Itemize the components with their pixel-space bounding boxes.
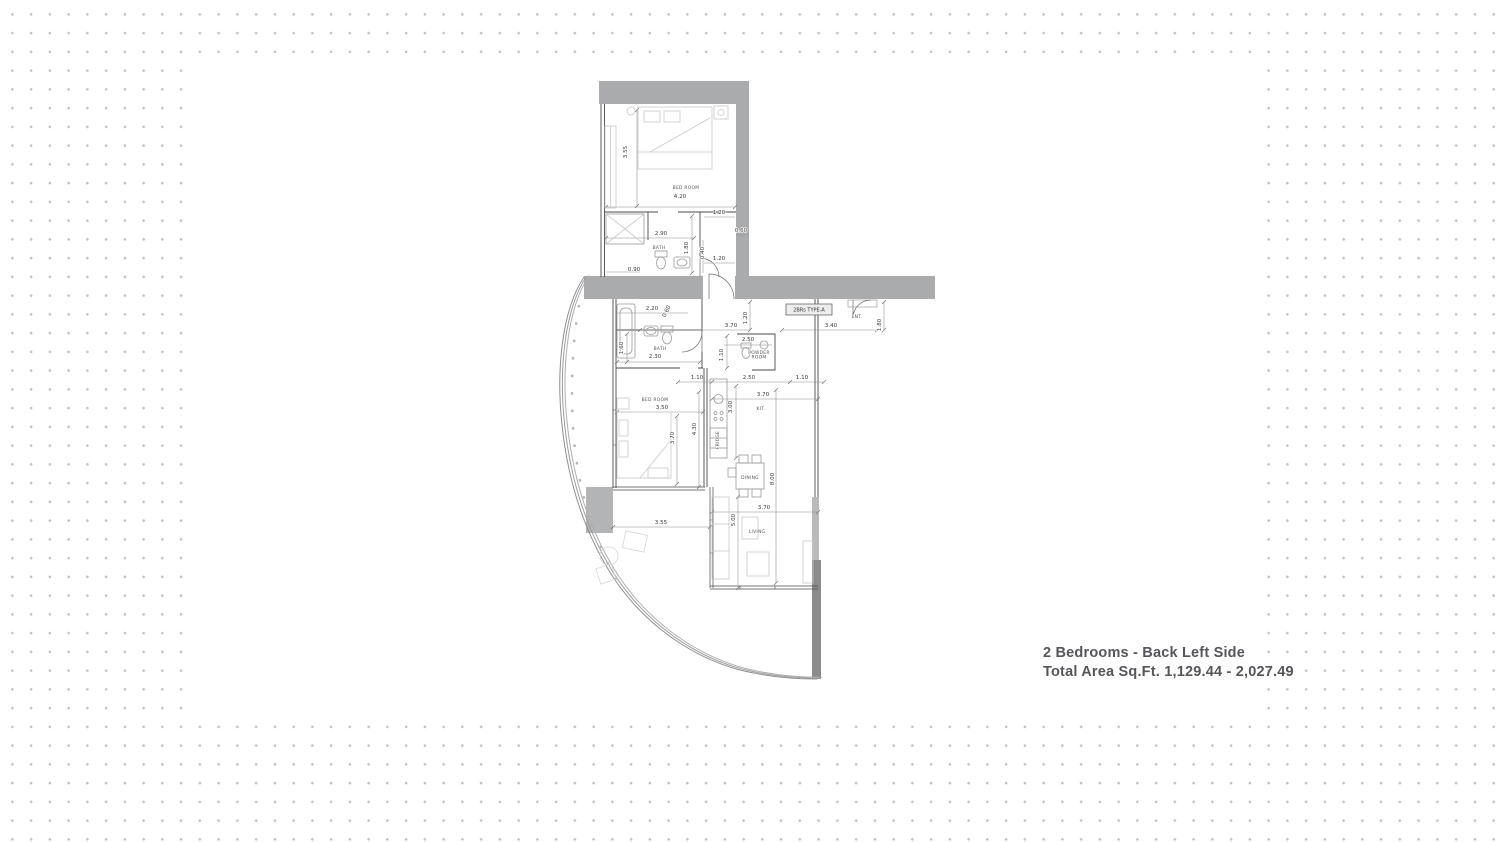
dim-label: 3.00 [728,400,734,413]
dim-label: 0.60 [735,228,748,234]
sink-2 [644,326,658,336]
balcony-furniture [596,531,648,584]
room-label: ENT. [852,314,863,320]
dim-label: 3.55 [623,145,629,158]
dim-label: 1.60 [619,341,625,354]
plan-caption-line1: 2 Bedrooms - Back Left Side [1043,644,1294,663]
bed-1 [627,106,728,169]
dim-label: 3.55 [655,520,668,526]
dim-label: 0.40 [700,246,706,259]
room-label: ROOM [752,355,767,361]
shower-1 [606,214,644,244]
dim-label: 1.10 [719,348,725,361]
dim-label: 1.20 [743,311,749,324]
dim-label: 2.30 [649,354,662,360]
dim-label: 2.50 [742,337,755,343]
dim-label: 5.00 [731,513,737,526]
plan-caption: 2 Bedrooms - Back Left Side Total Area S… [1043,644,1294,682]
dim-label: 1.10 [796,375,809,381]
labels-layer: 3.554.201.200.602.901.800.401.200.902.20… [619,145,883,535]
floor-plan-svg: 2BRs TYPE-A 3.554.201.200.602.901.800.40… [0,0,1500,842]
dim-label: 2.20 [646,306,659,312]
wardrobe-1 [605,126,616,208]
dim-label: 0.90 [628,267,641,273]
dim-label: 3.70 [758,505,771,511]
dim-label: 3.70 [670,431,676,444]
toilet-2 [661,326,673,344]
dim-label: 3.40 [825,323,838,329]
room-label: BED ROOM [673,185,700,191]
dim-label: 2.50 [743,375,756,381]
plan-caption-line2: Total Area Sq.Ft. 1,129.44 - 2,027.49 [1043,663,1294,682]
dim-label: 3.70 [757,392,770,398]
furniture-layer [596,106,813,584]
room-label: FRIDGE [715,431,721,449]
dim-label: 3.50 [656,405,669,411]
wall-mid-right [735,276,935,299]
dim-label: 1.20 [713,256,726,262]
sink-1 [674,257,690,268]
room-label: BATH [653,245,666,251]
dim-label: 0.60 [662,304,673,318]
wall-mid-left [584,276,703,299]
unit-tag-label: 2BRs TYPE-A [793,308,825,314]
page: { "caption": { "line1": "2 Bedrooms - Ba… [0,0,1500,842]
unit-tag: 2BRs TYPE-A [786,304,832,315]
dim-label: 1.10 [691,375,704,381]
room-label: BATH [654,346,667,352]
balcony-column [586,487,613,533]
dim-label: 3.70 [725,323,738,329]
dim-label: 1.20 [713,210,726,216]
dim-label: 1.80 [684,241,690,254]
dim-label: 1.80 [877,318,883,331]
room-label: LIVING [749,529,766,535]
dim-label: 4.30 [692,422,698,435]
balcony-railing [560,275,822,679]
dim-label: 4.20 [674,194,687,200]
room-label: BED ROOM [642,397,669,403]
toilet-1 [655,251,667,269]
wall-right-upper [736,104,749,277]
dim-label: 8.00 [770,472,776,485]
room-label: DINING [741,475,759,481]
room-label: KIT. [757,406,766,412]
dim-label: 2.90 [655,231,668,237]
wall-top [599,81,749,104]
